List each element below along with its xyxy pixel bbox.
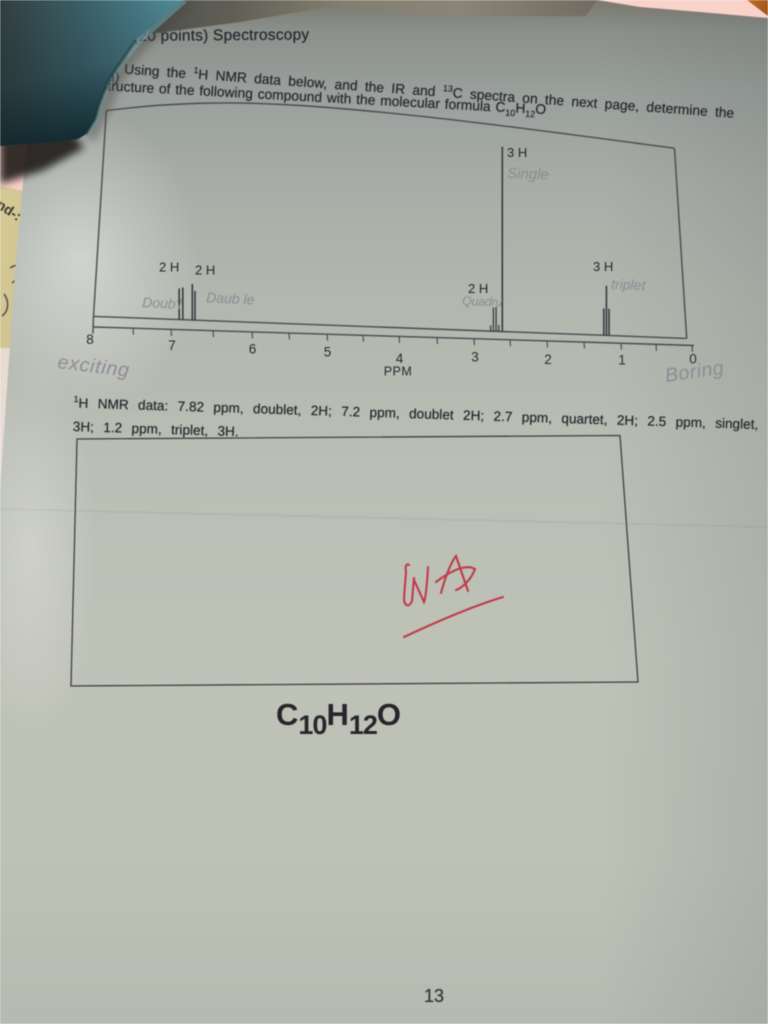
svg-text:3 H: 3 H	[593, 259, 613, 274]
svg-text:2 H: 2 H	[195, 263, 215, 278]
svg-text:exciting: exciting	[56, 351, 131, 382]
svg-text:PPM: PPM	[384, 365, 413, 379]
svg-text:3: 3	[471, 350, 479, 365]
svg-text:Daub le: Daub le	[206, 289, 255, 308]
svg-text:Doub'l: Doub'l	[142, 294, 183, 312]
svg-text:8: 8	[86, 332, 94, 347]
svg-text:6: 6	[249, 342, 257, 357]
svg-text:Quadru: Quadru	[462, 294, 503, 309]
svg-text:2 H: 2 H	[159, 260, 179, 275]
svg-text:2: 2	[544, 352, 552, 367]
svg-text:7: 7	[168, 338, 176, 353]
svg-text:1: 1	[618, 353, 626, 368]
svg-text:5: 5	[324, 345, 332, 360]
svg-text:Boring: Boring	[664, 357, 726, 387]
svg-text:triplet: triplet	[611, 276, 647, 293]
